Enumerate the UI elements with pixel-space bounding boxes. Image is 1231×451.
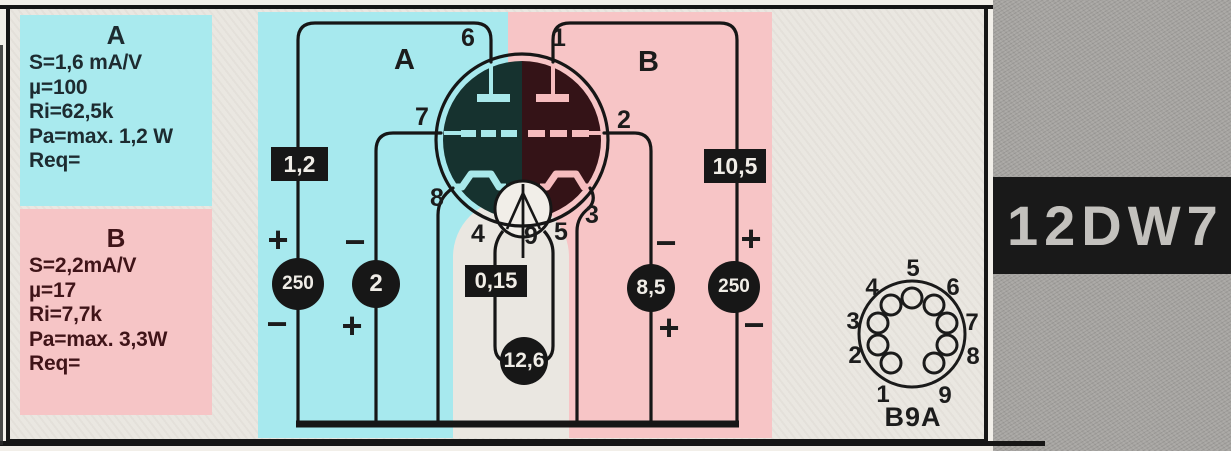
grid-b-plus-sign: + xyxy=(653,312,685,344)
part-number-band: 12DW7 xyxy=(993,177,1231,274)
anode-a-wire xyxy=(298,23,491,424)
triode-a-wiring xyxy=(298,23,491,424)
grid-a-bias-badge: 2 xyxy=(352,260,400,308)
pin-label-3: 3 xyxy=(580,201,604,230)
anode-b-plus-sign: + xyxy=(735,223,767,255)
circuit-section-a-label: A xyxy=(394,44,415,77)
socket-pin-3-label: 3 xyxy=(842,308,864,336)
triode-a-grid xyxy=(461,130,517,137)
triode-a-anode-plate xyxy=(477,94,510,102)
socket-base-caption: B9A xyxy=(878,402,948,433)
grid-b-minus-sign: − xyxy=(650,227,682,259)
anode-b-dissipation-badge: 10,5 xyxy=(704,149,766,183)
pin-label-5: 5 xyxy=(549,218,573,247)
grid-a-plus-sign: + xyxy=(336,310,368,342)
pin-label-4: 4 xyxy=(466,220,490,249)
triode-b-anode-plate xyxy=(536,94,569,102)
pin-label-9: 9 xyxy=(519,222,543,251)
triode-b-grid xyxy=(528,130,589,137)
socket-pin-6-label: 6 xyxy=(942,274,964,302)
grid-b-bias-badge: 8,5 xyxy=(627,264,675,312)
anode-a-plus-sign: + xyxy=(262,224,294,256)
pin-label-1: 1 xyxy=(547,24,571,53)
socket-pin-7-label: 7 xyxy=(961,309,983,337)
socket-pin-5-label: 5 xyxy=(902,255,924,283)
cathode-a-wire xyxy=(438,188,453,424)
pin-label-8: 8 xyxy=(425,184,449,213)
anode-a-dissipation-badge: 1,2 xyxy=(271,147,328,181)
socket-pin-8-label: 8 xyxy=(962,343,984,371)
grid-a-minus-sign: − xyxy=(339,226,371,258)
socket-pin-2-label: 2 xyxy=(844,342,866,370)
scanned-datasheet-page: A S=1,6 mA/V µ=100 Ri=62,5k Pa=max. 1,2 … xyxy=(0,0,1231,451)
pin-label-2: 2 xyxy=(612,106,636,135)
circuit-section-b-label: B xyxy=(638,46,659,79)
socket-pin-4-label: 4 xyxy=(861,274,883,302)
anode-a-minus-sign: − xyxy=(261,308,293,340)
pin-label-7: 7 xyxy=(410,103,434,132)
heater-current-badge: 0,15 xyxy=(465,265,527,297)
anode-b-minus-sign: − xyxy=(738,309,770,341)
pin-label-6: 6 xyxy=(456,24,480,53)
bottom-border-rule xyxy=(0,441,1045,446)
scan-edge-artifact xyxy=(0,45,3,445)
part-number-label: 12DW7 xyxy=(993,193,1224,258)
heater-voltage-badge: 12,6 xyxy=(500,337,548,385)
